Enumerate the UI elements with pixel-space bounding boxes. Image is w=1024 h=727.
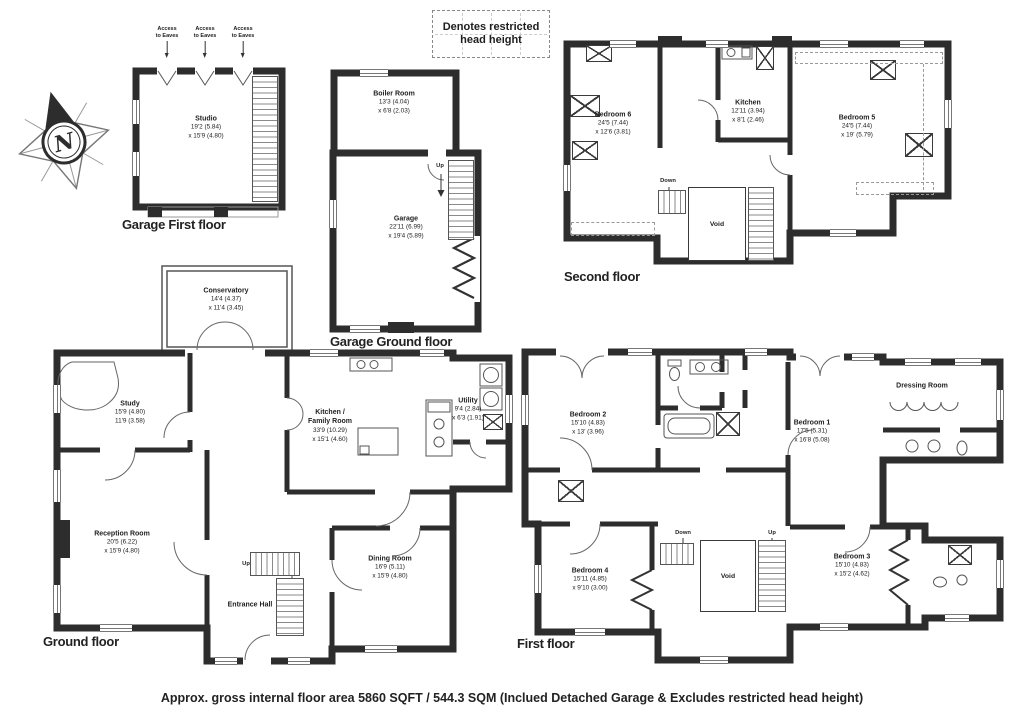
room-dim: 22'11 (6.99) (389, 224, 422, 233)
room-label-bedroom-6: Bedroom 6 24'5 (7.44) x 12'6 (3.81) (595, 111, 632, 138)
legend-note: Denotes restricted head height (439, 21, 543, 46)
x-marker (716, 412, 740, 436)
window (706, 40, 728, 48)
room-name: Bedroom 4 (572, 567, 609, 576)
staircase-garage-first (252, 76, 278, 202)
room-label-garage: Garage 22'11 (6.99) x 19'4 (5.89) (388, 215, 423, 242)
window (420, 349, 444, 357)
room-dim: 11'9 (3.58) (115, 418, 145, 427)
access-to-eaves-label: Access (195, 26, 214, 33)
access-to-eaves-label: Access (157, 26, 176, 33)
room-dim: x 9'10 (3.00) (572, 585, 607, 594)
plan-first-floor (525, 348, 1000, 660)
staircase-second-floor (748, 187, 774, 261)
x-marker (558, 480, 584, 502)
window (820, 623, 848, 631)
window (996, 390, 1004, 420)
void-first-floor: Void (700, 540, 756, 612)
room-label-reception-room: Reception Room 20'5 (6.22) x 15'9 (4.80) (94, 530, 150, 557)
room-dim: 14'4 (4.37) (211, 296, 241, 305)
access-to-eaves-note: Access to Eaves (194, 26, 217, 58)
access-to-eaves-note: Access to Eaves (232, 26, 255, 58)
window (944, 100, 952, 128)
room-name: Bedroom 5 (839, 114, 876, 123)
window (900, 40, 924, 48)
room-dim: 20'5 (6.22) (107, 539, 137, 548)
window (745, 348, 767, 356)
x-marker (756, 46, 774, 70)
room-label-entrance-hall: Entrance Hall (228, 600, 273, 609)
staircase-first-floor-down (660, 543, 694, 565)
room-label-bedroom-2: Bedroom 2 15'10 (4.83) x 13' (3.96) (570, 411, 607, 438)
window (53, 585, 61, 613)
x-marker (586, 45, 612, 62)
window (360, 69, 388, 77)
stairs-direction-label: Down (660, 178, 676, 184)
room-dim: x 6'8 (2.03) (378, 108, 410, 117)
room-dim: x 8'1 (2.46) (732, 117, 764, 126)
room-name: Bedroom 3 (834, 553, 871, 562)
room-name: Dining Room (368, 555, 412, 564)
window (132, 100, 140, 124)
x-marker (483, 414, 503, 430)
room-dim: 24'5 (7.44) (842, 123, 872, 132)
floor-title-ground: Ground floor (43, 634, 119, 649)
room-dim: 15'10 (4.83) (835, 562, 869, 571)
room-name: Family Room (308, 417, 352, 426)
room-label-utility: Utility 9'4 (2.84) x 6'3 (1.91) (452, 397, 484, 424)
room-dim: 33'9 (10.29) (313, 427, 347, 436)
window (830, 229, 856, 237)
window (534, 565, 542, 593)
room-name: Conservatory (203, 287, 248, 296)
floor-title-second: Second floor (564, 269, 640, 284)
void-label: Void (710, 221, 724, 228)
room-label-bedroom-5: Bedroom 5 24'5 (7.44) x 19' (5.79) (839, 114, 876, 141)
room-label-dining-room: Dining Room 16'9 (5.11) x 15'9 (4.80) (368, 555, 412, 582)
window (329, 200, 337, 228)
window (53, 385, 61, 413)
room-name: Study (120, 400, 139, 409)
window (628, 348, 652, 356)
stairs-direction-label: Down (675, 530, 691, 536)
window (350, 325, 380, 333)
room-name: Bedroom 6 (595, 111, 632, 120)
access-to-eaves-note: Access to Eaves (156, 26, 179, 58)
room-dim: 19'2 (5.84) (191, 124, 221, 133)
access-to-eaves-label: to Eaves (232, 33, 255, 40)
down-arrow-icon (205, 41, 206, 53)
room-name: Garage (394, 215, 418, 224)
x-marker (572, 141, 598, 160)
x-marker (905, 133, 933, 157)
stairs-direction-label: Up (436, 163, 444, 169)
room-dim: x 15'1 (4.60) (312, 435, 347, 444)
room-label-dressing-room: Dressing Room (896, 381, 948, 390)
floorplan-drawing: N (0, 0, 1024, 727)
room-label-kitchen-second: Kitchen 12'11 (3.94) x 8'1 (2.46) (731, 99, 764, 126)
window (905, 358, 931, 366)
room-dim: x 15'9 (4.80) (188, 133, 223, 142)
access-to-eaves-label: to Eaves (194, 33, 217, 40)
window (996, 560, 1004, 588)
floor-title-garage-first: Garage First floor (122, 217, 226, 232)
access-to-eaves-label: Access (233, 26, 252, 33)
room-label-studio: Studio 19'2 (5.84) x 15'9 (4.80) (188, 115, 223, 142)
room-label-study: Study 15'9 (4.80) 11'9 (3.58) (115, 400, 145, 427)
down-arrow-icon (203, 53, 207, 58)
room-name: Bedroom 2 (570, 411, 607, 420)
room-label-bedroom-1: Bedroom 1 17'5 (5.31) x 16'8 (5.08) (794, 419, 831, 446)
void-label: Void (721, 573, 735, 580)
floorplan-page: N (0, 0, 1024, 727)
room-dim: 12'11 (3.94) (731, 108, 764, 117)
fireplace (60, 520, 70, 558)
staircase-second-floor-down (658, 190, 686, 214)
floor-title-first: First floor (517, 636, 574, 651)
window (563, 165, 571, 191)
room-name: Reception Room (94, 530, 150, 539)
window (820, 40, 848, 48)
down-arrow-icon (165, 53, 169, 58)
room-name: Boiler Room (373, 90, 415, 99)
window (100, 624, 132, 632)
garage-door-post (388, 322, 414, 333)
room-label-bedroom-3: Bedroom 3 15'10 (4.83) x 15'2 (4.62) (834, 553, 871, 580)
window (53, 470, 61, 502)
room-dim: x 12'6 (3.81) (595, 129, 630, 138)
restricted-zone (856, 182, 934, 195)
down-arrow-icon (167, 41, 168, 53)
window (215, 657, 237, 665)
compass-icon: N (6, 80, 121, 200)
window (852, 353, 874, 361)
room-dim: 15'9 (4.80) (115, 409, 145, 418)
window (132, 152, 140, 176)
window (945, 614, 969, 622)
void-second-floor: Void (688, 187, 746, 261)
room-label-boiler-room: Boiler Room 13'3 (4.04) x 6'8 (2.03) (373, 90, 415, 117)
access-to-eaves-label: to Eaves (156, 33, 179, 40)
window (521, 395, 529, 425)
restricted-zone (795, 52, 943, 64)
restricted-zone (923, 64, 924, 190)
room-name: Kitchen (735, 99, 761, 108)
room-dim: x 11'4 (3.45) (209, 305, 244, 314)
staircase-first-floor-up (758, 540, 786, 612)
window (575, 628, 605, 636)
room-dim: 17'5 (5.31) (797, 428, 827, 437)
stairs-direction-label: Up (768, 530, 776, 536)
room-dim: x 15'9 (4.80) (104, 548, 139, 557)
down-arrow-icon (243, 41, 244, 53)
room-name: Kitchen / (315, 408, 345, 417)
room-label-conservatory: Conservatory 14'4 (4.37) x 11'4 (3.45) (203, 287, 248, 314)
room-label-kitchen-family: Kitchen / Family Room 33'9 (10.29) x 15'… (308, 408, 352, 444)
staircase-ground-floor-turn (276, 578, 304, 636)
restricted-zone (571, 222, 655, 236)
room-name: Entrance Hall (228, 600, 273, 609)
room-dim: x 15'2 (4.62) (834, 571, 869, 580)
room-dim: x 19' (5.79) (841, 132, 873, 141)
area-caption: Approx. gross internal floor area 5860 S… (0, 691, 1024, 705)
room-dim: 16'9 (5.11) (375, 564, 405, 573)
window (610, 40, 636, 48)
room-name: Dressing Room (896, 381, 948, 390)
room-dim: x 19'4 (5.89) (388, 233, 423, 242)
window (505, 395, 513, 423)
room-dim: 15'11 (4.85) (573, 576, 606, 585)
room-name: Studio (195, 115, 217, 124)
window (365, 645, 397, 653)
room-dim: 24'5 (7.44) (598, 120, 628, 129)
window (288, 657, 310, 665)
room-dim: x 13' (3.96) (572, 429, 604, 438)
staircase-ground-floor (250, 552, 300, 576)
window (955, 358, 981, 366)
stairs-direction-label: Up (242, 561, 250, 567)
room-dim: x 6'3 (1.91) (452, 415, 484, 424)
window (700, 656, 728, 664)
room-dim: 13'3 (4.04) (379, 99, 409, 108)
room-dim: x 15'9 (4.80) (372, 573, 407, 582)
floor-title-garage-ground: Garage Ground floor (330, 334, 452, 349)
room-dim: 9'4 (2.84) (455, 406, 482, 415)
room-name: Bedroom 1 (794, 419, 831, 428)
room-dim: x 16'8 (5.08) (794, 437, 829, 446)
room-dim: 15'10 (4.83) (571, 420, 605, 429)
room-name: Utility (458, 397, 477, 406)
x-marker (948, 545, 972, 565)
down-arrow-icon (241, 53, 245, 58)
staircase-garage-ground (448, 160, 474, 240)
restricted-head-height-legend: Denotes restricted head height (432, 10, 550, 58)
room-label-bedroom-4: Bedroom 4 15'11 (4.85) x 9'10 (3.00) (572, 567, 609, 594)
window (310, 349, 338, 357)
